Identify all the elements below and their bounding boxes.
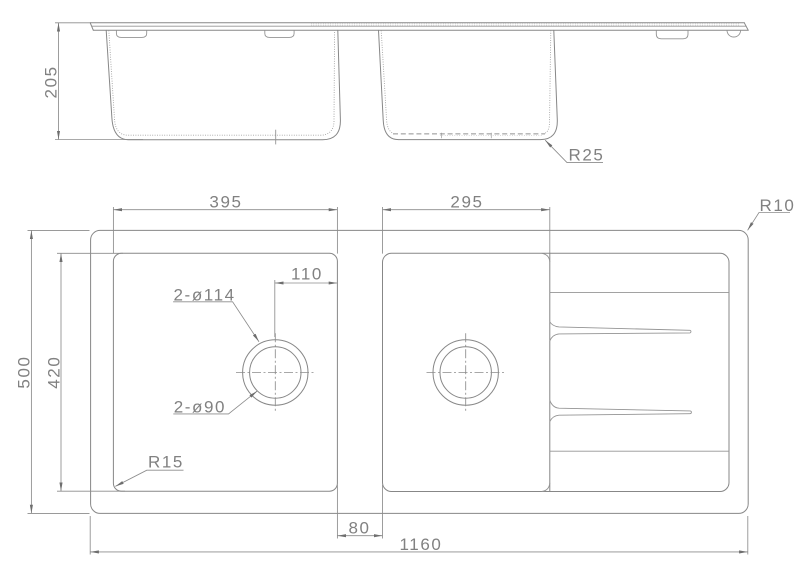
- svg-text:80: 80: [348, 519, 370, 538]
- svg-text:2-ø90: 2-ø90: [174, 397, 226, 416]
- svg-text:500: 500: [14, 355, 33, 388]
- svg-text:R15: R15: [148, 453, 184, 472]
- svg-text:1160: 1160: [400, 535, 443, 554]
- svg-text:110: 110: [291, 265, 323, 284]
- svg-text:2-ø114: 2-ø114: [174, 286, 236, 305]
- svg-text:420: 420: [44, 356, 63, 389]
- svg-text:205: 205: [42, 65, 61, 98]
- svg-text:R25: R25: [569, 146, 605, 165]
- svg-text:R10: R10: [760, 196, 796, 215]
- svg-text:395: 395: [209, 192, 242, 211]
- svg-text:295: 295: [450, 192, 483, 211]
